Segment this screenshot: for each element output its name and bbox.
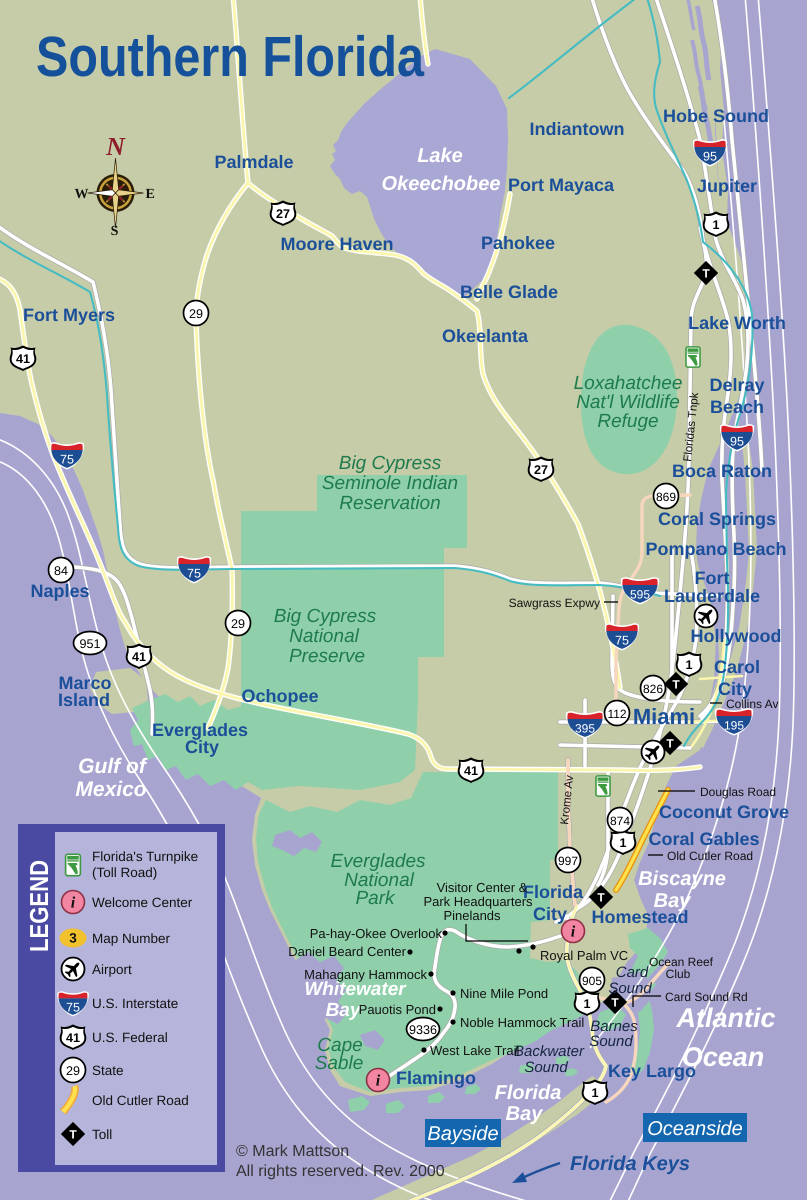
svg-text:75: 75 bbox=[66, 1001, 80, 1015]
svg-text:Royal Palm VC: Royal Palm VC bbox=[540, 948, 628, 963]
svg-text:Toll: Toll bbox=[92, 1127, 112, 1142]
svg-text:Refuge: Refuge bbox=[597, 411, 658, 432]
svg-text:Park: Park bbox=[355, 888, 396, 909]
svg-text:27: 27 bbox=[276, 207, 290, 221]
svg-text:905: 905 bbox=[582, 974, 602, 988]
svg-text:Big Cypress: Big Cypress bbox=[274, 606, 377, 627]
svg-text:Hobe Sound: Hobe Sound bbox=[663, 106, 769, 126]
svg-text:Coconut Grove: Coconut Grove bbox=[659, 802, 789, 822]
svg-text:© Mark Mattson: © Mark Mattson bbox=[236, 1143, 349, 1160]
svg-text:997: 997 bbox=[558, 854, 578, 868]
svg-text:All rights reserved. Rev. 2000: All rights reserved. Rev. 2000 bbox=[236, 1163, 445, 1180]
svg-text:S: S bbox=[111, 224, 119, 239]
svg-text:Port Mayaca: Port Mayaca bbox=[508, 175, 615, 195]
svg-text:Miami: Miami bbox=[633, 704, 695, 729]
svg-text:Bayside: Bayside bbox=[427, 1123, 498, 1145]
svg-text:Okeechobee: Okeechobee bbox=[382, 173, 501, 195]
svg-text:869: 869 bbox=[656, 490, 676, 504]
svg-text:LEGEND: LEGEND bbox=[24, 860, 54, 952]
svg-text:Mahagany Hammock: Mahagany Hammock bbox=[304, 967, 427, 982]
svg-text:Sound: Sound bbox=[608, 980, 652, 997]
svg-text:Ochopee: Ochopee bbox=[241, 686, 318, 706]
svg-text:1: 1 bbox=[619, 836, 626, 850]
svg-text:U.S. Interstate: U.S. Interstate bbox=[92, 996, 178, 1011]
svg-text:Florida's Turnpike: Florida's Turnpike bbox=[92, 849, 198, 864]
svg-text:E: E bbox=[146, 187, 155, 202]
svg-text:195: 195 bbox=[724, 718, 744, 732]
svg-text:Belle Glade: Belle Glade bbox=[460, 282, 558, 302]
svg-text:41: 41 bbox=[66, 1031, 80, 1045]
svg-text:Coral Springs: Coral Springs bbox=[658, 509, 776, 529]
svg-text:Pahokee: Pahokee bbox=[481, 233, 555, 253]
svg-text:Backwater: Backwater bbox=[514, 1043, 585, 1060]
svg-text:41: 41 bbox=[132, 650, 146, 664]
svg-text:84: 84 bbox=[54, 564, 68, 578]
svg-text:Flamingo: Flamingo bbox=[396, 1068, 476, 1088]
svg-text:Beach: Beach bbox=[710, 397, 764, 417]
svg-text:(Toll Road): (Toll Road) bbox=[92, 865, 157, 880]
svg-text:95: 95 bbox=[730, 435, 744, 449]
svg-text:U.S. Federal: U.S. Federal bbox=[92, 1030, 168, 1045]
svg-text:75: 75 bbox=[187, 567, 201, 581]
svg-text:Big Cypress: Big Cypress bbox=[339, 453, 442, 474]
svg-text:Nine Mile Pond: Nine Mile Pond bbox=[460, 986, 548, 1001]
svg-text:Loxahatchee: Loxahatchee bbox=[574, 373, 683, 394]
svg-text:Florida Keys: Florida Keys bbox=[570, 1153, 690, 1175]
svg-text:Florida: Florida bbox=[495, 1082, 562, 1104]
svg-text:Indiantown: Indiantown bbox=[530, 119, 625, 139]
svg-text:874: 874 bbox=[610, 814, 630, 828]
svg-text:Sound: Sound bbox=[589, 1033, 633, 1050]
svg-text:N: N bbox=[105, 132, 126, 161]
svg-text:1: 1 bbox=[712, 218, 719, 232]
svg-text:West Lake Trail: West Lake Trail bbox=[430, 1043, 519, 1058]
svg-text:3: 3 bbox=[69, 931, 77, 946]
svg-text:27: 27 bbox=[534, 463, 548, 477]
svg-text:1: 1 bbox=[591, 1086, 598, 1100]
svg-text:Lake Worth: Lake Worth bbox=[688, 313, 786, 333]
svg-text:95: 95 bbox=[703, 150, 717, 164]
svg-text:Douglas Road: Douglas Road bbox=[700, 785, 776, 799]
svg-text:1: 1 bbox=[685, 658, 692, 672]
svg-text:395: 395 bbox=[575, 721, 595, 735]
svg-text:Oceanside: Oceanside bbox=[647, 1118, 743, 1140]
svg-text:Naples: Naples bbox=[30, 581, 89, 601]
svg-text:Fort Myers: Fort Myers bbox=[23, 305, 115, 325]
svg-text:Airport: Airport bbox=[92, 962, 132, 977]
svg-text:Bay: Bay bbox=[506, 1103, 544, 1125]
svg-text:Welcome Center: Welcome Center bbox=[92, 895, 193, 910]
svg-text:29: 29 bbox=[66, 1064, 80, 1078]
svg-text:Jupiter: Jupiter bbox=[697, 176, 757, 196]
svg-text:City: City bbox=[718, 679, 752, 699]
svg-text:Southern Florida: Southern Florida bbox=[36, 26, 425, 89]
svg-text:Nat'l Wildlife: Nat'l Wildlife bbox=[576, 392, 680, 413]
svg-text:National: National bbox=[289, 626, 359, 647]
svg-text:Card Sound Rd: Card Sound Rd bbox=[665, 990, 748, 1004]
svg-text:951: 951 bbox=[79, 637, 100, 651]
svg-text:Moore Haven: Moore Haven bbox=[280, 234, 393, 254]
svg-text:Mexico: Mexico bbox=[75, 778, 146, 801]
svg-text:Visitor Center &: Visitor Center & bbox=[437, 880, 528, 895]
svg-text:Seminole Indian: Seminole Indian bbox=[322, 473, 458, 494]
svg-text:1: 1 bbox=[583, 997, 590, 1011]
svg-text:41: 41 bbox=[464, 764, 478, 778]
svg-text:Old Cutler Road: Old Cutler Road bbox=[92, 1093, 189, 1108]
svg-text:29: 29 bbox=[231, 617, 245, 631]
svg-text:Reservation: Reservation bbox=[339, 493, 440, 514]
svg-text:75: 75 bbox=[615, 634, 629, 648]
svg-text:Park Headquarters: Park Headquarters bbox=[423, 894, 533, 909]
svg-text:9336: 9336 bbox=[409, 1023, 437, 1037]
svg-text:Noble Hammock Trail: Noble Hammock Trail bbox=[460, 1015, 584, 1030]
svg-text:City: City bbox=[185, 737, 219, 757]
svg-text:Atlantic: Atlantic bbox=[675, 1003, 775, 1033]
svg-text:826: 826 bbox=[643, 682, 663, 696]
svg-text:Bay: Bay bbox=[654, 890, 692, 912]
svg-text:Sound: Sound bbox=[524, 1059, 568, 1076]
svg-text:41: 41 bbox=[16, 352, 30, 366]
svg-text:City: City bbox=[533, 904, 567, 924]
svg-text:Carol: Carol bbox=[714, 657, 760, 677]
svg-text:112: 112 bbox=[607, 707, 626, 721]
svg-text:Sawgrass Expwy: Sawgrass Expwy bbox=[509, 596, 600, 610]
svg-text:Biscayne: Biscayne bbox=[638, 868, 726, 890]
svg-text:Lauderdale: Lauderdale bbox=[664, 586, 760, 606]
svg-text:Fort: Fort bbox=[695, 568, 730, 588]
svg-text:75: 75 bbox=[60, 453, 74, 467]
svg-text:Pinelands: Pinelands bbox=[443, 908, 501, 923]
svg-text:Sable: Sable bbox=[315, 1053, 364, 1074]
svg-text:Lake: Lake bbox=[417, 145, 463, 167]
svg-text:29: 29 bbox=[189, 307, 203, 321]
svg-text:Island: Island bbox=[58, 690, 110, 710]
svg-text:Club: Club bbox=[666, 967, 691, 981]
svg-text:Collins Av: Collins Av bbox=[726, 697, 778, 711]
svg-text:Okeelanta: Okeelanta bbox=[442, 326, 529, 346]
svg-text:Gulf of: Gulf of bbox=[78, 755, 148, 778]
svg-text:Map Number: Map Number bbox=[92, 931, 171, 946]
svg-text:W: W bbox=[75, 187, 89, 202]
svg-text:Pompano Beach: Pompano Beach bbox=[645, 539, 786, 559]
svg-text:Everglades: Everglades bbox=[330, 851, 426, 872]
svg-text:Pa-hay-Okee Overlook: Pa-hay-Okee Overlook bbox=[310, 926, 443, 941]
svg-text:Pauotis Pond: Pauotis Pond bbox=[359, 1002, 436, 1017]
svg-text:Ocean: Ocean bbox=[682, 1042, 765, 1072]
svg-text:Coral Gables: Coral Gables bbox=[648, 829, 759, 849]
svg-text:Hollywood: Hollywood bbox=[691, 626, 782, 646]
svg-text:Daniel Beard Center: Daniel Beard Center bbox=[288, 944, 406, 959]
svg-text:Whitewater: Whitewater bbox=[304, 979, 407, 1000]
svg-text:Boca Raton: Boca Raton bbox=[672, 461, 772, 481]
svg-text:Delray: Delray bbox=[709, 375, 764, 395]
svg-text:Preserve: Preserve bbox=[289, 646, 365, 667]
svg-text:Card: Card bbox=[616, 964, 649, 981]
svg-text:Palmdale: Palmdale bbox=[214, 152, 293, 172]
svg-text:595: 595 bbox=[630, 587, 650, 601]
svg-text:Old Cutler Road: Old Cutler Road bbox=[667, 849, 753, 863]
svg-text:State: State bbox=[92, 1063, 124, 1078]
svg-text:Bay: Bay bbox=[326, 1000, 362, 1021]
